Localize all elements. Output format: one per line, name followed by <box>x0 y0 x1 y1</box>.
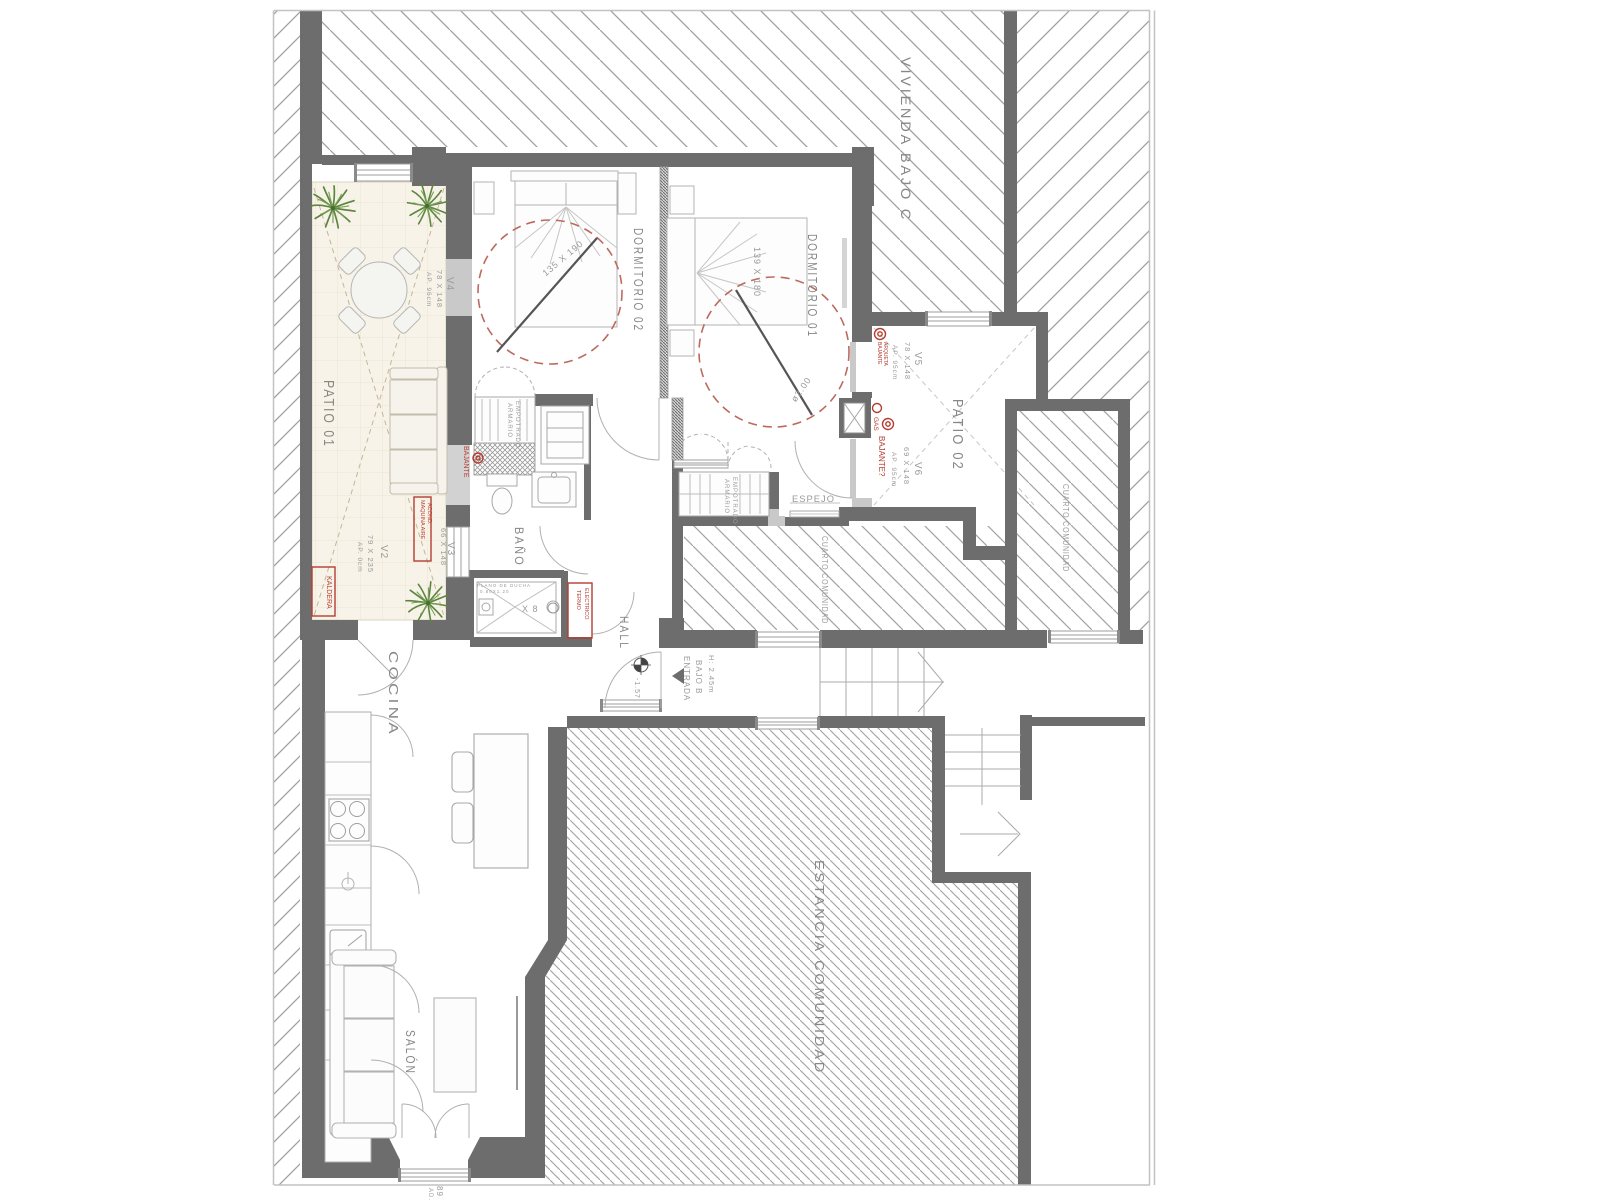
svg-text:AP. 96cm: AP. 96cm <box>425 272 432 307</box>
svg-text:ELECTRICO: ELECTRICO <box>583 588 589 620</box>
svg-text:PATIO 01: PATIO 01 <box>320 380 337 448</box>
svg-text:ARMARIO: ARMARIO <box>723 479 729 514</box>
svg-text:78 X 148: 78 X 148 <box>435 270 444 308</box>
svg-text:DORMITORIO 02: DORMITORIO 02 <box>631 228 646 332</box>
svg-text:X 8: X 8 <box>522 604 539 614</box>
svg-text:79 X 235: 79 X 235 <box>366 535 375 573</box>
svg-text:AP. 95cm: AP. 95cm <box>891 345 898 380</box>
svg-text:COCINA: COCINA <box>386 651 400 737</box>
svg-text:66 X 148: 66 X 148 <box>439 528 448 566</box>
svg-text:V5: V5 <box>912 352 923 366</box>
svg-text:CUARTO COMUNIDAD: CUARTO COMUNIDAD <box>820 536 830 624</box>
svg-text:139 X 180: 139 X 180 <box>752 247 762 297</box>
svg-text:BAJANTE: BAJANTE <box>462 446 469 478</box>
svg-text:AD.: AD. <box>427 1188 433 1200</box>
svg-text:VIVIENDA BAJO C: VIVIENDA BAJO C <box>898 57 913 222</box>
svg-text:ENTRADA: ENTRADA <box>682 656 691 701</box>
svg-text:DORMITORIO 01: DORMITORIO 01 <box>805 234 820 338</box>
svg-text:ESTANCIA COMUNIDAD: ESTANCIA COMUNIDAD <box>812 860 827 1075</box>
svg-text:78 X 148: 78 X 148 <box>903 342 912 380</box>
svg-text:MAQUINA AIRE: MAQUINA AIRE <box>419 500 425 540</box>
svg-text:KALDERA: KALDERA <box>325 576 332 609</box>
svg-text:BAJO B: BAJO B <box>694 660 703 694</box>
svg-text:GAS: GAS <box>872 417 879 431</box>
svg-text:EMPOTRADO: EMPOTRADO <box>514 401 520 449</box>
svg-text:0.80X1.20: 0.80X1.20 <box>480 589 510 594</box>
svg-text:PLANO DE DUCHA: PLANO DE DUCHA <box>477 583 531 588</box>
svg-text:TERMO: TERMO <box>575 590 581 611</box>
svg-text:ARQUETA: ARQUETA <box>882 342 888 366</box>
svg-text:AP. 0cm: AP. 0cm <box>356 542 363 573</box>
svg-text:ARMARIO: ARMARIO <box>506 403 512 438</box>
svg-text:BAÑO: BAÑO <box>512 527 526 567</box>
svg-text:PATIO 02: PATIO 02 <box>949 399 965 471</box>
svg-text:EMPOTRADO: EMPOTRADO <box>731 477 737 525</box>
svg-text:ESPEJO: ESPEJO <box>792 494 835 504</box>
svg-text:69 X 148: 69 X 148 <box>902 447 911 485</box>
svg-text:-1.57: -1.57 <box>633 678 640 699</box>
svg-text:89: 89 <box>435 1186 444 1197</box>
svg-text:BAJANTE?: BAJANTE? <box>877 436 886 477</box>
svg-text:ACOND.: ACOND. <box>426 503 432 525</box>
svg-text:CUARTO COMUNIDAD: CUARTO COMUNIDAD <box>1061 484 1071 572</box>
svg-text:H: 2.45m: H: 2.45m <box>707 655 716 693</box>
svg-text:AP. 95cm: AP. 95cm <box>890 452 897 487</box>
svg-text:V2: V2 <box>378 545 389 559</box>
svg-text:V6: V6 <box>912 462 923 476</box>
svg-text:BAJANTE: BAJANTE <box>876 342 882 365</box>
svg-text:V4: V4 <box>444 277 455 291</box>
svg-text:SALÓN: SALÓN <box>403 1030 418 1075</box>
svg-text:HALL: HALL <box>617 616 631 650</box>
